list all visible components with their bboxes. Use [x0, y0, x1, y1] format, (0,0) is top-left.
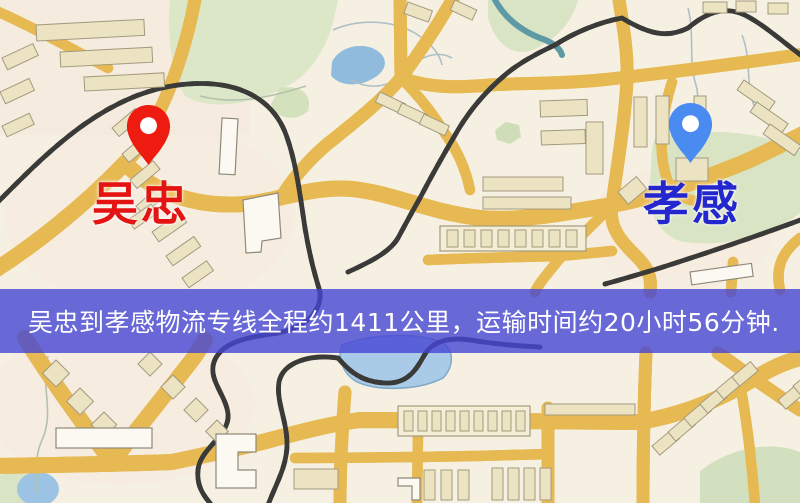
- pin-hole: [140, 117, 157, 134]
- route-info-banner: 吴忠到孝感物流专线全程约1411公里，运输时间约20小时56分钟.: [0, 289, 800, 353]
- destination-label: 孝感: [643, 181, 741, 227]
- map-screenshot: 吴忠 孝感 吴忠到孝感物流专线全程约1411公里，运输时间约20小时56分钟.: [0, 0, 800, 503]
- pin-hole: [682, 115, 699, 132]
- pin-shape: [127, 105, 170, 165]
- destination-pin-icon[interactable]: [668, 100, 713, 166]
- pin-shape: [669, 103, 712, 163]
- route-info-text: 吴忠到孝感物流专线全程约1411公里，运输时间约20小时56分钟.: [0, 303, 780, 339]
- origin-pin-icon[interactable]: [126, 102, 171, 168]
- map-canvas[interactable]: [0, 0, 800, 503]
- origin-label: 吴忠: [92, 181, 190, 227]
